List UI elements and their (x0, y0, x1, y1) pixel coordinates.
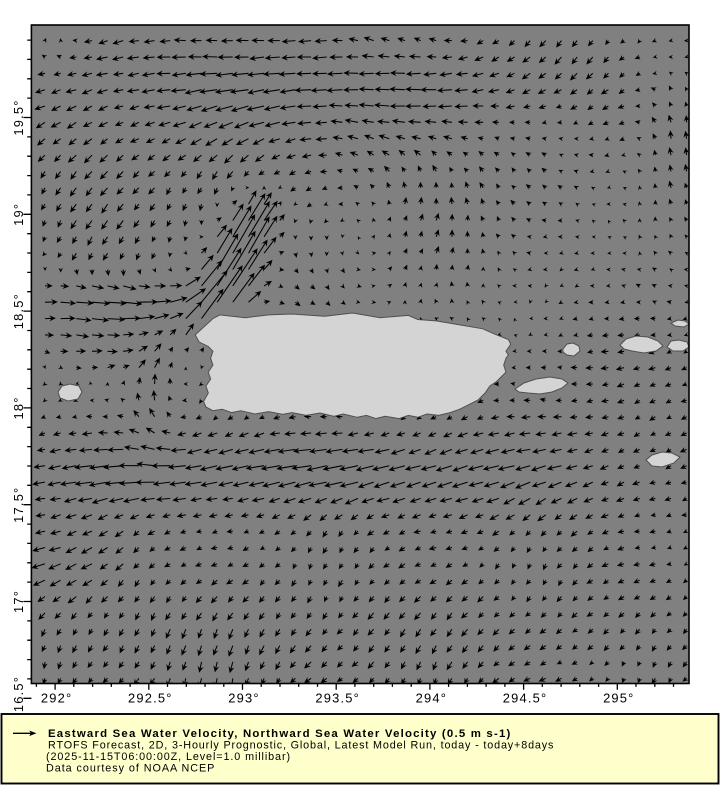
svg-text:RTOFS Forecast, 2D, 3-Hourly P: RTOFS Forecast, 2D, 3-Hourly Prognostic,… (48, 739, 554, 751)
svg-text:292.5°: 292.5° (128, 691, 173, 706)
svg-text:19°: 19° (11, 203, 26, 226)
svg-text:16.5°: 16.5° (11, 676, 26, 712)
svg-text:18°: 18° (11, 396, 26, 419)
svg-text:294°: 294° (416, 691, 447, 706)
svg-text:17°: 17° (11, 590, 26, 613)
svg-text:Data courtesy of NOAA NCEP: Data courtesy of NOAA NCEP (46, 762, 215, 774)
svg-text:292°: 292° (41, 691, 72, 706)
svg-text:293.5°: 293.5° (315, 691, 360, 706)
svg-text:293°: 293° (228, 691, 259, 706)
svg-text:294.5°: 294.5° (503, 691, 548, 706)
svg-text:19.5°: 19.5° (11, 99, 26, 135)
svg-text:17.5°: 17.5° (11, 487, 26, 523)
svg-text:18.5°: 18.5° (11, 293, 26, 329)
svg-text:(2025-11-15T06:00:00Z, Level=1: (2025-11-15T06:00:00Z, Level=1.0 milliba… (46, 751, 291, 763)
svg-text:295°: 295° (603, 691, 634, 706)
svg-text:Eastward Sea Water Velocity, N: Eastward Sea Water Velocity, Northward S… (48, 728, 511, 740)
